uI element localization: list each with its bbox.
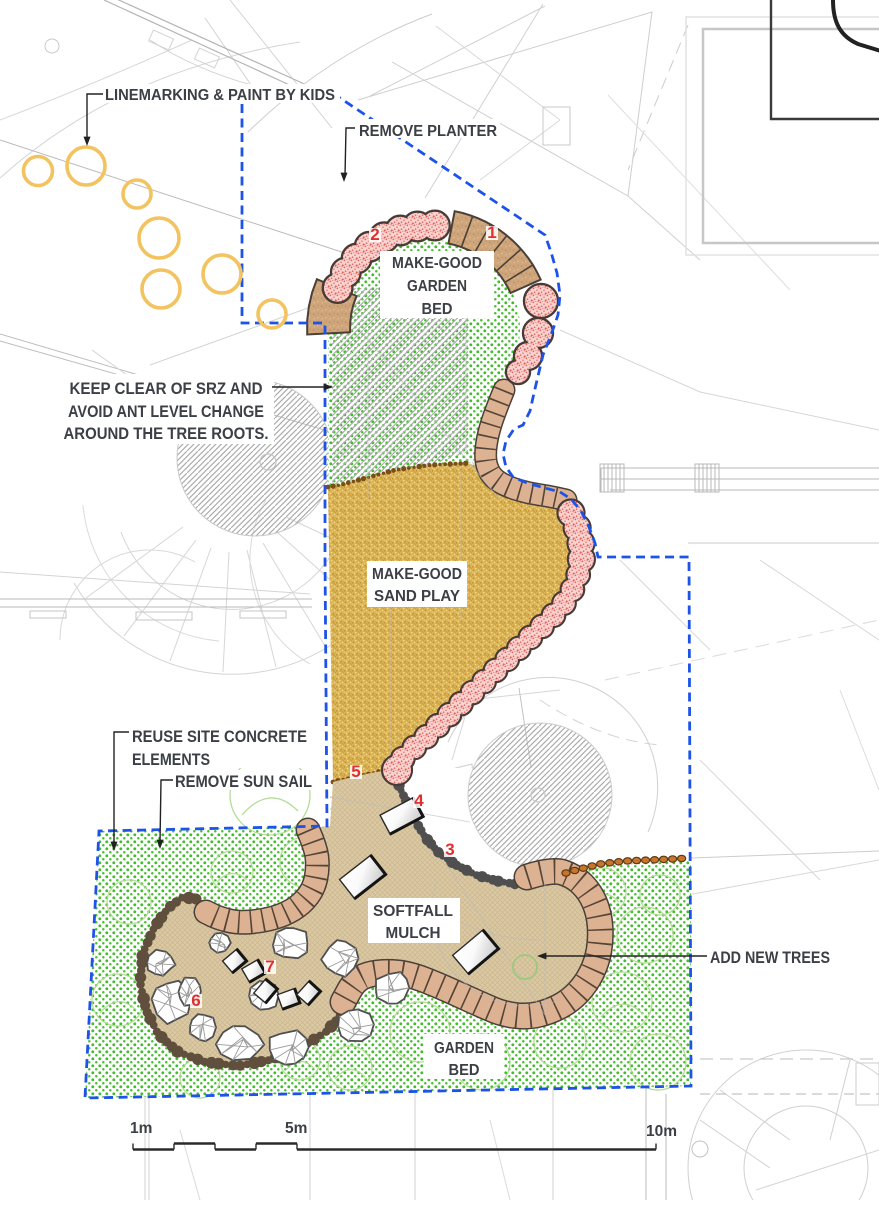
- svg-text:4: 4: [414, 791, 424, 810]
- svg-text:BED: BED: [422, 301, 453, 318]
- svg-text:REUSE SITE CONCRETE: REUSE SITE CONCRETE: [132, 728, 307, 746]
- svg-text:3: 3: [445, 840, 454, 859]
- svg-text:MAKE-GOOD: MAKE-GOOD: [372, 566, 462, 583]
- svg-text:AVOID ANT LEVEL CHANGE: AVOID ANT LEVEL CHANGE: [68, 403, 264, 421]
- svg-text:6: 6: [191, 991, 200, 1010]
- svg-text:SAND PLAY: SAND PLAY: [374, 588, 460, 605]
- svg-text:ADD NEW TREES: ADD NEW TREES: [710, 949, 830, 967]
- svg-text:5: 5: [351, 762, 360, 781]
- svg-text:SOFTFALL: SOFTFALL: [373, 903, 453, 920]
- svg-text:MAKE-GOOD: MAKE-GOOD: [392, 255, 482, 272]
- svg-text:LINEMARKING & PAINT BY KIDS: LINEMARKING & PAINT BY KIDS: [105, 87, 335, 104]
- svg-text:GARDEN: GARDEN: [407, 278, 467, 295]
- svg-text:2: 2: [370, 225, 379, 244]
- svg-text:AROUND THE TREE ROOTS.: AROUND THE TREE ROOTS.: [64, 425, 269, 443]
- svg-text:KEEP CLEAR OF SRZ AND: KEEP CLEAR OF SRZ AND: [70, 380, 263, 398]
- svg-text:10m: 10m: [646, 1123, 677, 1140]
- svg-text:BED: BED: [449, 1062, 480, 1079]
- svg-text:1: 1: [487, 223, 496, 242]
- svg-text:ELEMENTS: ELEMENTS: [132, 751, 210, 769]
- svg-text:MULCH: MULCH: [386, 925, 441, 942]
- svg-text:5m: 5m: [285, 1120, 307, 1137]
- svg-text:1m: 1m: [130, 1120, 152, 1137]
- svg-text:REMOVE SUN SAIL: REMOVE SUN SAIL: [175, 773, 312, 791]
- svg-text:GARDEN: GARDEN: [434, 1040, 494, 1057]
- svg-text:7: 7: [265, 957, 274, 976]
- svg-text:REMOVE PLANTER: REMOVE PLANTER: [359, 123, 497, 140]
